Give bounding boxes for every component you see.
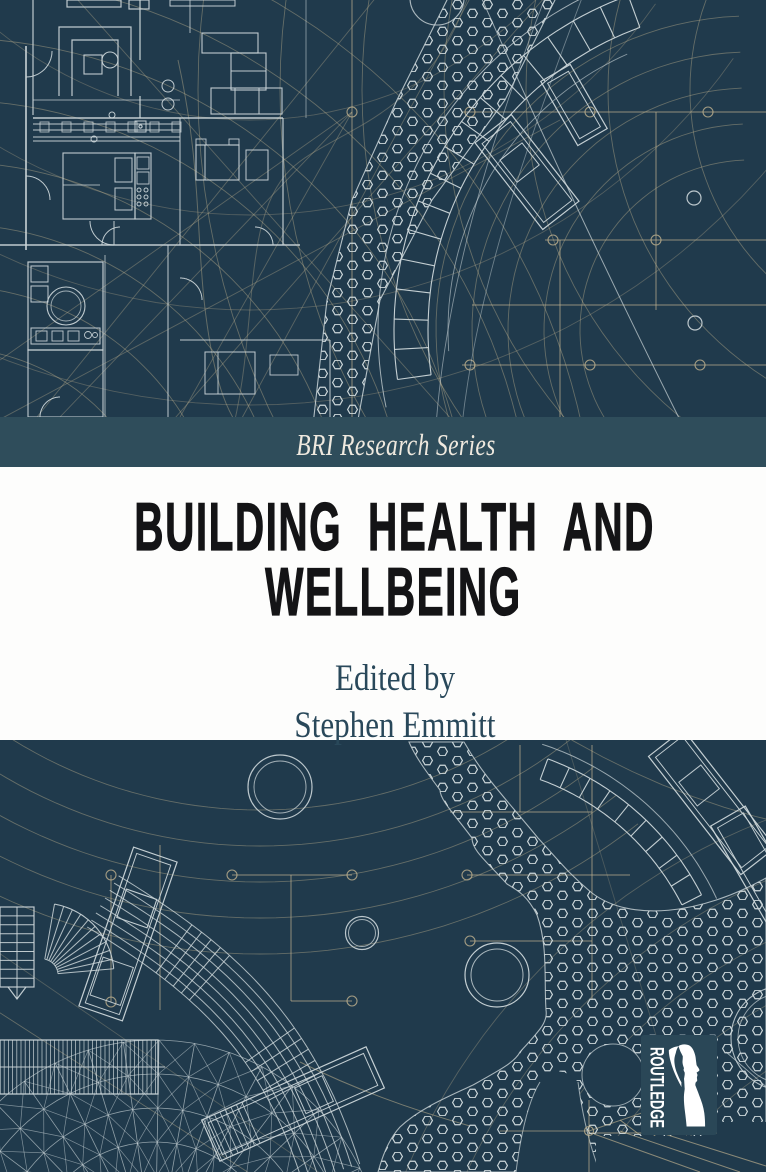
svg-text:ROUTLEDGE: ROUTLEDGE <box>646 1047 668 1128</box>
